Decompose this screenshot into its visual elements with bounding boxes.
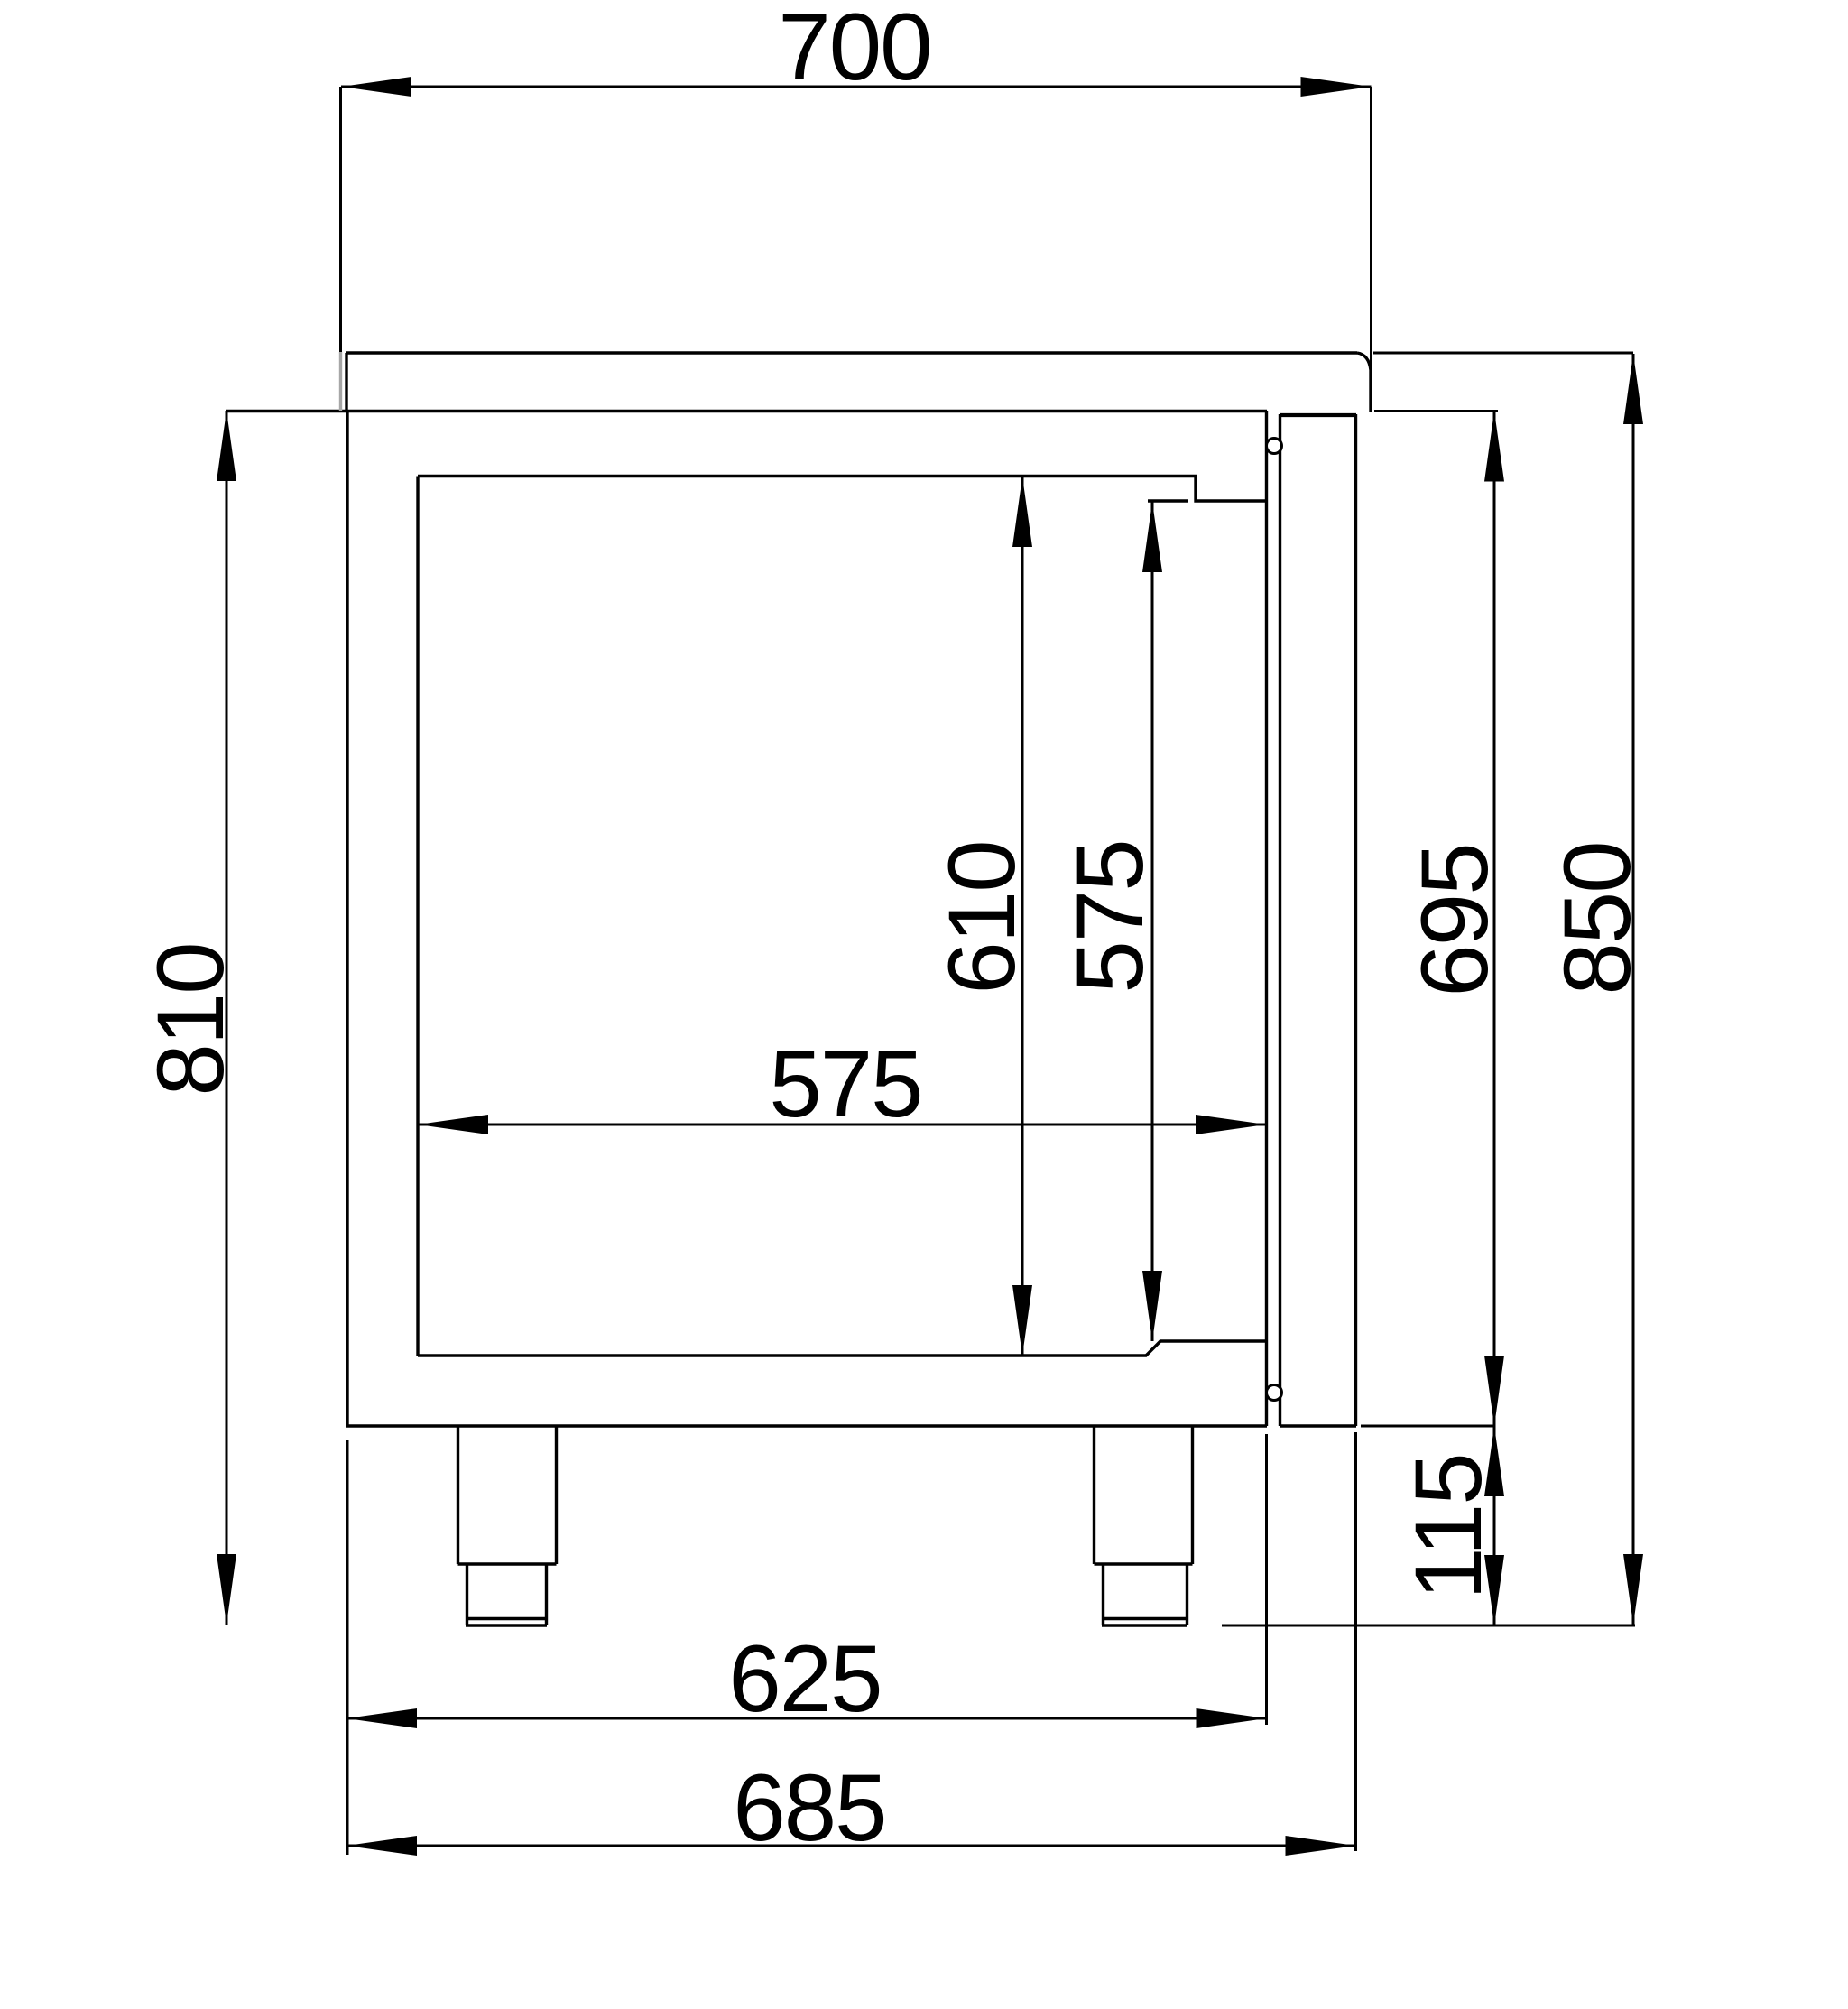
svg-text:610: 610 xyxy=(929,841,1035,994)
svg-text:625: 625 xyxy=(728,1626,881,1732)
svg-text:695: 695 xyxy=(1402,844,1508,996)
svg-text:115: 115 xyxy=(1396,1454,1501,1599)
svg-text:575: 575 xyxy=(769,1032,921,1137)
svg-text:685: 685 xyxy=(733,1755,885,1861)
svg-text:575: 575 xyxy=(1058,840,1163,993)
svg-text:850: 850 xyxy=(1545,842,1650,995)
svg-text:700: 700 xyxy=(778,0,930,100)
svg-text:810: 810 xyxy=(138,943,244,1096)
